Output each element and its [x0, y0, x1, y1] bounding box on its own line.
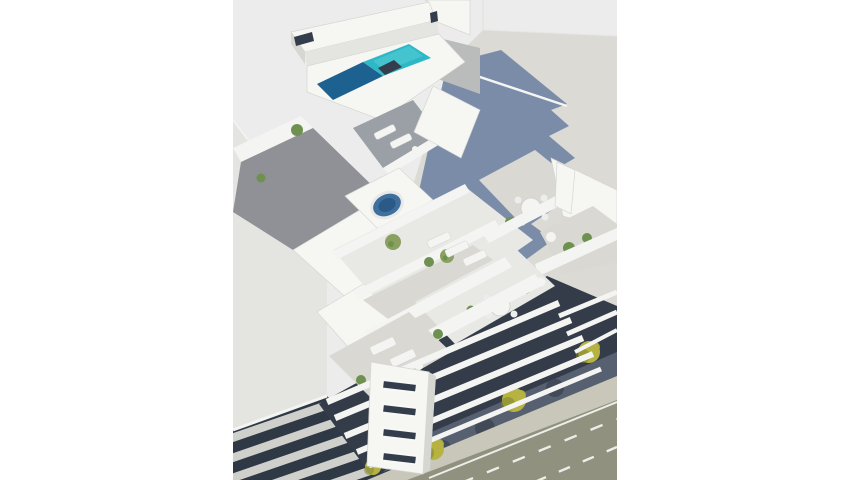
potted-plant	[433, 329, 443, 339]
chair	[541, 195, 548, 202]
roof-slot-window	[430, 11, 438, 23]
potted-plant	[291, 124, 303, 136]
small-tree-shade	[388, 241, 394, 247]
chair	[511, 311, 518, 318]
small-tree-shade	[443, 256, 448, 261]
potted-plant	[257, 174, 266, 183]
side-table	[412, 146, 418, 152]
potted-plant	[424, 257, 434, 267]
render-scene-svg	[233, 0, 617, 480]
architectural-render	[233, 0, 617, 480]
render-canvas: Aerial 3D architectural render of a mode…	[0, 0, 850, 480]
bistro-table	[546, 232, 556, 242]
chair	[515, 197, 522, 204]
roof-stack-block	[555, 162, 575, 214]
